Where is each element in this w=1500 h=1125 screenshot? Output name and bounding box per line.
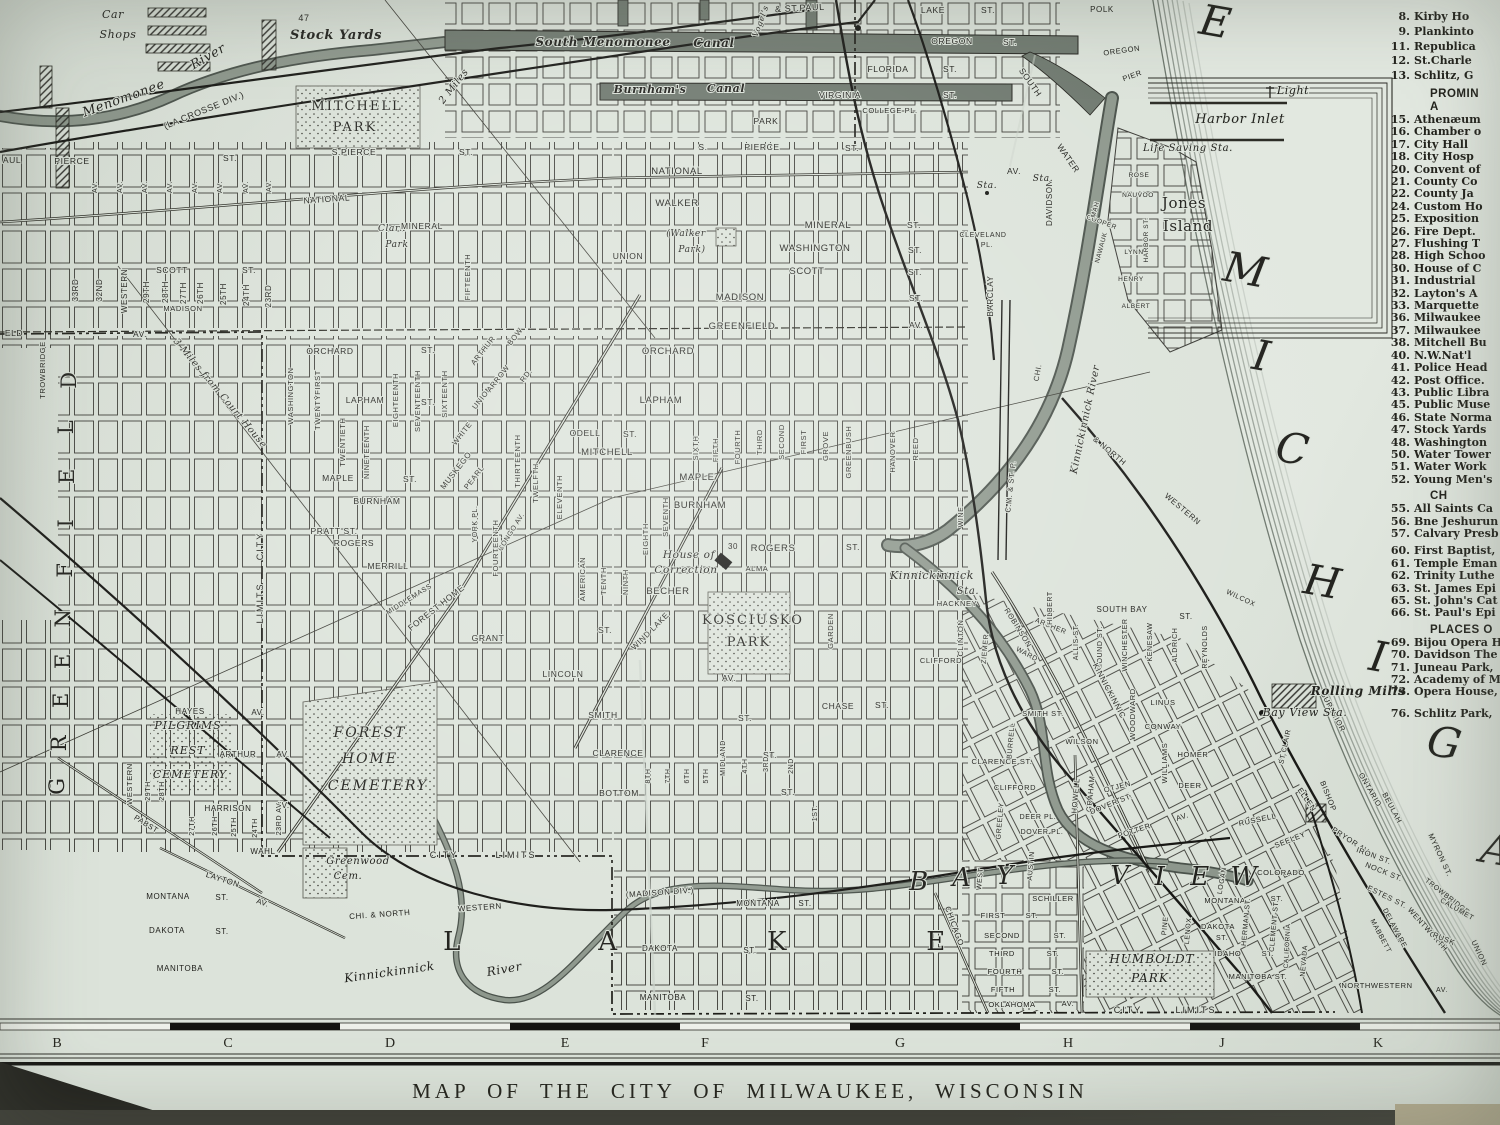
map-label: AV. [1062,999,1075,1008]
map-label: ELEVENTH [555,475,564,519]
map-label: AV. [192,181,199,193]
legend-item: 45.Public Muse [1386,399,1500,411]
map-label: 6TH [684,768,691,783]
legend-item-label: Public Muse [1414,399,1490,411]
map-label: 2ND [788,758,795,774]
legend-item-number: 22. [1386,188,1410,200]
map-title: MAP OF THE CITY OF MILWAUKEE, WISCONSIN [412,1079,1088,1103]
legend-item-number: 41. [1386,362,1410,374]
legend-section: PROMINA [1386,88,1500,114]
map-label: PIERCE [54,156,89,166]
map-label: CITY [1114,1005,1143,1015]
map-label: MADISON [163,304,202,313]
map-label: M [1219,242,1272,298]
map-label: PIERCE [744,142,779,152]
map-label: Jones [1160,194,1206,212]
legend-item: 11.Republica [1386,40,1500,55]
map-label: AUL [3,155,21,165]
legend-header: PLACES O [1386,624,1500,637]
legend-item: 38.Mitchell Bu [1386,337,1500,349]
legend-item-label: Police Head [1414,362,1487,374]
map-label: SCOTT [789,266,824,277]
map-label: WESTERN [120,269,129,313]
legend-item: 47.Stock Yards [1386,424,1500,436]
map-label: LIMITS [255,582,265,623]
map-label: AV. [243,181,250,193]
map-label: Kinnickinnick [889,569,974,582]
map-label: HAYES [175,707,205,716]
map-label: SECOND [984,931,1020,940]
map-label: ST. [908,267,922,277]
map-label: MITCHELL [311,99,402,114]
legend-item-number: 51. [1386,461,1410,473]
legend-item-label: Calvary Presb [1414,528,1499,540]
legend-section: 60.First Baptist,61.Temple Eman62.Trinit… [1386,545,1500,619]
legend-item: 9.Plankinto [1386,25,1500,40]
map-label: E [55,468,79,484]
map-label: E [51,653,75,669]
map-label: ST. [1003,37,1017,47]
legend-item-number: 12. [1386,54,1410,69]
map-label: ALLIS ST. [1073,624,1080,661]
map-label: 5TH [703,768,710,783]
map-label: SEVENTH [661,497,670,537]
map-label: NAUVOO [1122,192,1154,199]
map-label: DEER [1178,781,1201,790]
map-label: ST. [875,700,889,710]
legend-item-label: Republica [1414,40,1476,55]
map-label: HACKNEY [937,599,977,608]
legend-item-label: High Schoo [1414,250,1485,262]
map-label: ST. [403,474,417,484]
map-label: ST. [1026,911,1039,920]
map-label: ST. [943,64,957,74]
legend-item-number: 57. [1386,528,1410,540]
map-label: D [57,371,81,388]
map-label: AV. [722,673,736,683]
legend-item: 62.Trinity Luthe [1386,570,1500,582]
map-label: OKLAHOMA [988,1000,1035,1009]
map-label: ST. [1216,935,1228,942]
legend-item: 28.High Schoo [1386,250,1500,262]
map-label: PL. [981,242,993,249]
map-label: Greenwood [326,856,389,867]
map-label: WASHINGTON [286,367,295,424]
map-label: WILLIAMS [1160,743,1169,784]
legend-item: 57.Calvary Presb [1386,528,1500,540]
map-label: SOUTH BAY [1096,605,1147,614]
map-label: ST. [909,293,923,303]
map-label: 30 [728,542,738,551]
map-label: ST. [908,245,922,255]
map-label: AV. [92,181,99,193]
map-label: 3RD [763,756,770,772]
map-label: PILGRIMS [153,719,221,732]
map-label: AV. [217,181,224,193]
map-label: WESTERN [125,763,134,805]
map-label: ORCHARD [642,346,694,357]
map-label: Stock Yards [290,28,382,43]
legend-item: 22.County Ja [1386,188,1500,200]
map-label: A [597,927,618,957]
map-label: N [51,609,75,628]
grid-letter-E: E [561,1036,570,1051]
map-label: COLORADO [1257,868,1305,877]
map-label: SCHILLER [1032,894,1073,903]
map-label: LIMITS [495,850,536,860]
map-label: Cem. [334,871,363,882]
legend-item-number: 9. [1386,25,1410,40]
map-label: 25TH [219,283,228,305]
map-label: WOODWARD [1128,688,1137,740]
map-label: DAKOTA [642,944,678,953]
map-label: ROGERS [334,538,374,548]
legend-item: 12.St.Charle [1386,54,1500,69]
map-label: Sta. [957,586,979,597]
map-label: TENTH [599,567,608,595]
map-label: BURNHAM [674,500,726,511]
grid-letter-B: B [52,1036,61,1051]
map-label: PARK [333,120,377,135]
map-label: ST. [1179,612,1192,621]
map-label: ROGERS [751,543,796,554]
map-label: Harbor Inlet [1194,112,1285,127]
legend-item-label: Kirby Ho [1414,10,1469,25]
map-label: 28TH [161,281,170,303]
map-label: PARK [754,116,779,126]
map-label: AV. [142,181,149,193]
map-label: LAKE [921,5,945,15]
map-label: DAKOTA [149,926,185,935]
map-label: 29TH [142,281,151,303]
map-label: GREENBUSH [844,426,853,479]
legend-item: 8.Kirby Ho [1386,10,1500,25]
map-label: B [908,867,929,897]
map-label: ST. [1052,967,1065,976]
map-label: HARBOR ST. [1143,217,1150,262]
legend-item-number: 70. [1386,649,1410,661]
map-label: THIRTEENTH [513,434,522,487]
map-label: CLIFFORD [920,656,962,665]
legend-section: 8.Kirby Ho9.Plankinto11.Republica12.St.C… [1386,10,1500,84]
map-label: WILSON [1065,737,1098,746]
map-label: AMERICAN [578,557,587,601]
map-label: 24TH [252,818,259,838]
map-label: CITY [430,850,459,860]
legend-section: 15.Athenæum16.Chamber o17.City Hall18.Ci… [1386,114,1500,486]
legend-item-label: St.Charle [1414,54,1472,69]
legend-panel: 8.Kirby Ho9.Plankinto11.Republica12.St.C… [1386,10,1500,720]
legend-item-label: Schlitz Park, [1414,708,1493,720]
legend-item-label: Trinity Luthe [1414,570,1495,582]
map-label: L [54,420,78,435]
map-label: ALDRICH [1172,628,1179,663]
map-label: FOURTEENTH [491,519,500,576]
map-label: FIFTH [991,985,1015,994]
map-label: 27TH [189,816,196,836]
map-label: VIRGINIA [819,90,861,100]
map-label: AV. [167,181,174,193]
legend-item-number: 76. [1386,708,1410,720]
map-label: THIRD [989,949,1015,958]
map-label: CLINTON [956,620,965,657]
legend-item-number: 47. [1386,424,1410,436]
map-label: PARK [1130,971,1169,985]
map-label: ST. [242,265,256,275]
map-label: MERRILL [367,561,408,571]
map-label: MIDLAND [720,740,727,776]
map-label: ST. [598,625,612,635]
map-label: R [47,734,71,751]
map-label: Island [1163,217,1213,235]
map-label: 1ST. [812,805,819,821]
map-label: ARTHUR [220,750,257,759]
map-label: AV. [909,320,923,330]
map-label: BARCLAY [986,275,995,316]
map-label: LAPHAM [346,395,385,405]
kosciusko-park [708,592,790,674]
map-label: G [45,777,69,794]
map-label: House of [662,549,717,561]
map-label: ST. [907,220,921,230]
map-label: South Menomonee [535,35,670,49]
map-label: EIGHTEENTH [391,373,400,427]
map-label: POLK [1090,5,1114,14]
map-label: 28TH [159,781,166,801]
map-label: Park) [677,244,705,255]
map-label: PRATT ST. [310,526,357,536]
map-label: 7TH [665,768,672,783]
map-label: FIFTH [711,438,720,462]
map-label: AV. [1007,166,1021,176]
legend-item-number: 28. [1386,250,1410,262]
map-label: ROSE [1129,172,1150,179]
map-label: Park [384,240,408,250]
map-label: LINCOLN [542,669,583,679]
map-label: REST [169,744,206,757]
map-label: MONTANA [736,899,780,908]
map-label: HILBERT [1047,591,1054,625]
map-label: 29TH [145,781,152,801]
map-label: E [926,927,946,957]
map-label: SCOTT [156,265,188,275]
legend-item: 16.Chamber o [1386,126,1500,138]
map-label: UNION [613,251,643,261]
map-label: AV. [133,329,147,339]
legend-item: 25.Exposition [1386,213,1500,225]
map-label: 26TH [212,816,219,836]
legend-item-number: 25. [1386,213,1410,225]
map-label: FOURTH [988,967,1023,976]
map-label: HUMBOLDT [1108,952,1194,966]
legend-item: 13.Schlitz, G [1386,69,1500,84]
map-label: NATIONAL [651,166,703,177]
map-label: MAPLE [679,472,714,483]
legend-item-number: 13. [1386,69,1410,84]
grid-letter-C: C [223,1036,232,1051]
map-label: ST. [421,345,435,355]
legend-item: 51.Water Work [1386,461,1500,473]
map-label: Correction [654,564,717,576]
map-label: FIRST [981,911,1006,920]
legend-header: PROMIN [1386,88,1500,101]
map-label: ELD [5,328,23,338]
map-label: MONTANA [146,892,190,901]
map-label: KOSCIUSKO [702,613,804,628]
map-label: CLARENCE ST. [972,757,1033,766]
map-label: GRANT [472,633,505,643]
map-label: MAPLE [322,473,354,483]
page-corner-tan [1395,1104,1500,1125]
map-label: ODELL [570,428,601,438]
map-label: CLARENCE [592,748,643,758]
map-label: HANOVER [888,431,897,472]
legend-item: 73.Opera House, G [1386,686,1500,698]
map-label: 26TH [196,282,205,304]
map-label: Canal [693,36,734,50]
legend-item: 76.Schlitz Park, [1386,708,1500,720]
map-label: LIMITS [1175,1005,1216,1015]
map-label: 32ND [95,279,104,302]
map-label: ST. [215,893,228,902]
map-label: CHASE [822,701,854,711]
map-label: S. [698,142,707,152]
walker-park [716,228,736,246]
map-label: AV. [117,181,124,193]
map-label: Canal [707,82,745,95]
grid-letter-H: H [1063,1036,1073,1051]
map-label: SECOND [777,424,786,460]
legend-item-label: First Baptist, [1414,545,1495,557]
map-label: THIRD [755,429,764,455]
legend-item-number: 60. [1386,545,1410,557]
map-label: COLLEGE PL. [862,106,917,115]
legend-section: 55.All Saints Ca56.Bne Jeshurun57.Calvar… [1386,503,1500,540]
map-label: ST. [623,429,637,439]
legend-item: 52.Young Men's [1386,474,1500,486]
map-label: CLIFFORD [994,783,1036,792]
map-label: K [767,927,787,957]
map-label: BECHER [646,586,689,597]
legend-item-number: 11. [1386,40,1410,55]
map-label: EIGHTH [641,523,650,555]
map-label: TWELFTH [531,463,540,503]
map-label: BOTTOM [599,788,639,798]
map-label: 47 [298,13,309,23]
map-label: ST. [743,946,756,955]
map-label: MINERAL [401,221,443,231]
legend-item: 66.St. Paul's Epi [1386,607,1500,619]
map-label: ST. [459,147,473,157]
legend-item-label: Young Men's [1414,474,1492,486]
map-label: Shops [100,28,137,41]
legend-section: 69.Bijou Opera H70.Davidson The71.Juneau… [1386,637,1500,699]
map-label: REED [911,437,920,460]
map-label: HENRY [1118,276,1144,283]
legend-item: 55.All Saints Ca [1386,503,1500,515]
map-label: Bay View Sta. [1262,706,1348,719]
map-label: AV. [276,750,289,759]
map-label: OREGON [931,36,972,46]
map-label: NINETEENTH [362,425,371,479]
map-label: MONTANA [1204,896,1245,905]
legend-item-label: Industrial [1414,275,1475,287]
map-label: DAKOTA [1201,922,1235,931]
map-label: F [53,562,77,577]
legend-item-label: Davidson The [1414,649,1497,661]
map-label: IDAHO [1215,949,1242,958]
map-label: ST. [1049,985,1062,994]
map-label: 23RD AV. [276,801,283,835]
legend-item-label: Plankinto [1414,25,1474,40]
map-label: SMITH [588,710,617,720]
map-label: BURNHAM [353,496,400,506]
map-label: E [49,692,73,708]
map-label: Sta. [1033,174,1053,184]
map-label: CITY [255,532,265,561]
legend-item-number: 8. [1386,10,1410,25]
map-label: Burnham's [613,83,687,96]
map-label: ST. [798,899,811,908]
legend-item: 41.Police Head [1386,362,1500,374]
map-label: WINCHESTER [1122,618,1129,671]
map-label: GROVE [821,431,830,461]
map-label: ST. [421,397,435,407]
legend-item-number: 18. [1386,151,1410,163]
milwaukee-map-canvas: & ST.PAUL47Stock YardsCarShopsRiverMenom… [0,0,1500,1125]
map-label: DOVER PL. [1021,829,1064,836]
legend-item: 31.Industrial [1386,275,1500,287]
map-label: FLORIDA [867,64,908,74]
map-label: SIXTH [691,435,700,460]
map-label: ST. [845,143,859,153]
legend-item-label: Chamber o [1414,126,1481,138]
map-label: CLEVELAND [959,232,1006,239]
map-label: DAVIDSON [1045,180,1054,226]
map-label: ST. [738,713,752,723]
map-label: YORK PL. [472,505,479,542]
map-label: 25TH [231,817,238,837]
map-label: ST. [223,153,237,163]
map-label: ALBERT [1122,303,1151,310]
map-label: ST. [781,787,795,797]
map-label: CEMETERY [328,778,428,794]
map-label: LYNN [1124,249,1143,256]
map-label: AV. [251,708,264,717]
legend-item-number: 62. [1386,570,1410,582]
map-label: DEER PL. [1020,814,1057,821]
legend-item-label: Stock Yards [1414,424,1486,436]
map-label: KENESAW [1147,623,1154,662]
rolling-mills-building [1272,684,1316,708]
map-label: Light [1276,84,1309,97]
map-label: MANITOBA [157,964,204,973]
map-label: I [54,519,78,528]
map-label: FOURTH [733,430,742,465]
map-label: 8TH [645,768,652,783]
map-label: CEMETERY [153,768,228,781]
map-label: ST. [1047,949,1060,958]
legend-item-label: County Ja [1414,188,1474,200]
map-label: TWENTIETH [338,417,347,466]
map-label: S.PIERCE [332,147,376,157]
map-label: AV. [266,180,273,192]
map-label: WALKER [655,198,698,209]
map-label: MANITOBA [640,993,687,1002]
legend-item-label: Schlitz, G [1414,69,1473,84]
map-label: ST. [215,927,228,936]
grid-letter-G: G [895,1036,905,1051]
